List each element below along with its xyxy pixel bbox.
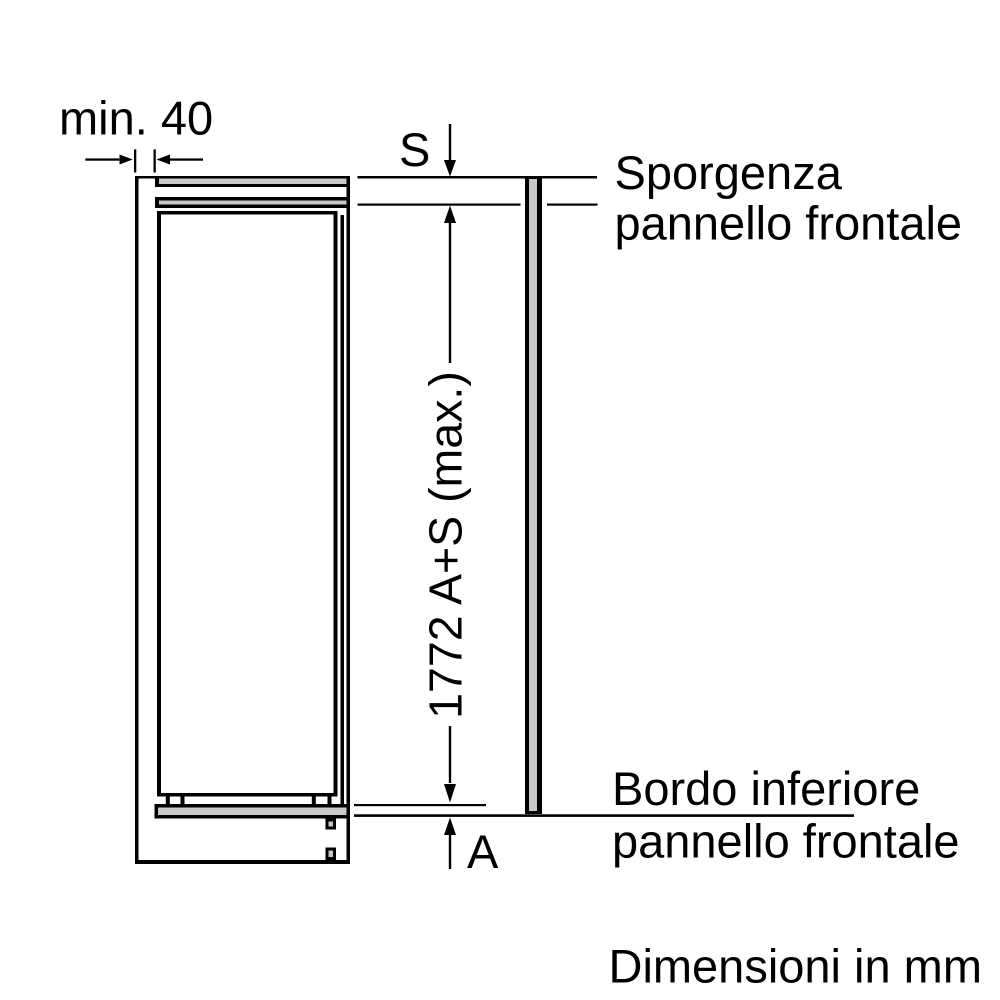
- svg-text:Bordo inferiore: Bordo inferiore: [612, 762, 920, 815]
- svg-text:S: S: [399, 123, 430, 176]
- svg-text:Sporgenza: Sporgenza: [615, 146, 843, 199]
- svg-text:A: A: [467, 825, 499, 878]
- svg-text:Dimensioni in mm: Dimensioni in mm: [609, 940, 982, 993]
- svg-text:1772 A+S (max.): 1772 A+S (max.): [420, 371, 472, 719]
- svg-text:min. 40: min. 40: [59, 92, 213, 145]
- svg-text:pannello frontale: pannello frontale: [615, 197, 963, 250]
- svg-text:pannello frontale: pannello frontale: [612, 815, 960, 868]
